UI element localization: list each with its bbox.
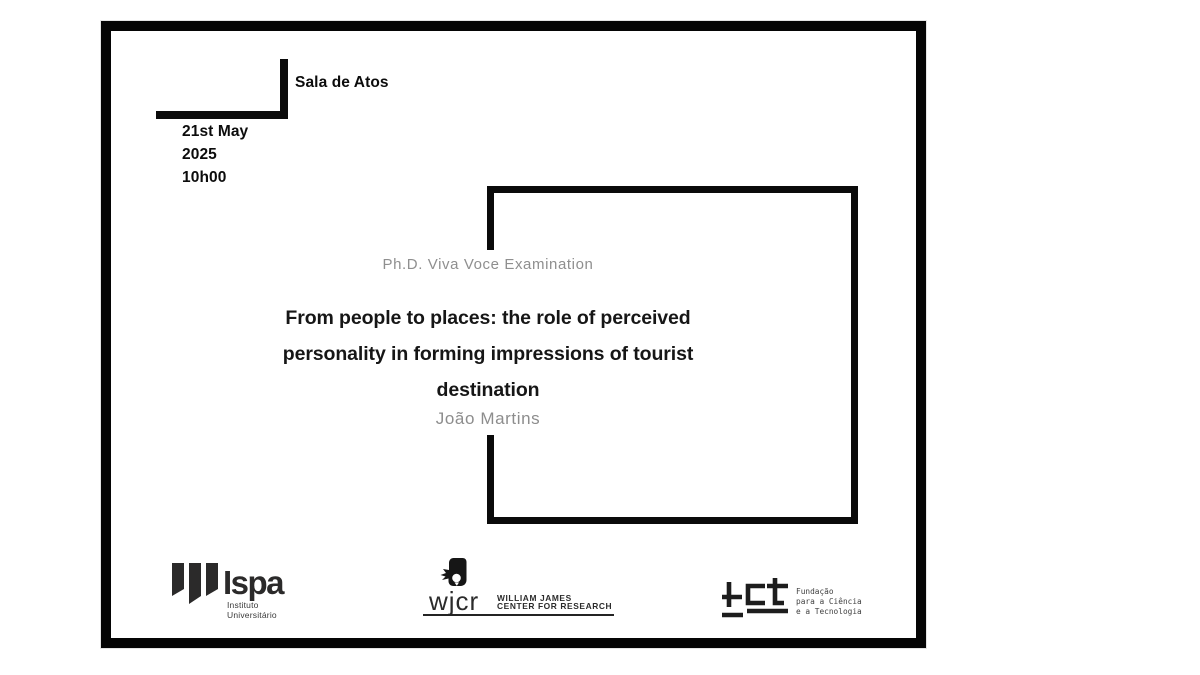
ispa-subtitle: Instituto Universitário <box>227 601 277 620</box>
date-line: 2025 <box>182 143 248 166</box>
corner-bracket-vertical <box>280 59 288 119</box>
date-line: 21st May <box>182 120 248 143</box>
wjcr-name-line: CENTER FOR RESEARCH <box>497 602 612 610</box>
datetime-block: 21st May 2025 10h00 <box>182 120 248 189</box>
thesis-title-line: destination <box>256 372 720 408</box>
thesis-title-line: personality in forming impressions of to… <box>256 336 720 372</box>
wjcr-underline <box>423 614 614 616</box>
event-type-label: Ph.D. Viva Voce Examination <box>256 256 720 274</box>
corner-bracket-horizontal <box>156 111 288 119</box>
fct-name-line: para a Ciência <box>796 597 862 607</box>
ispa-shield-icon <box>172 563 218 609</box>
thesis-title: From people to places: the role of perce… <box>256 300 720 408</box>
date-line: 10h00 <box>182 166 248 189</box>
wjcr-wordmark: wjcr <box>429 588 479 614</box>
fct-name-line: Fundação <box>796 587 862 597</box>
fct-name-line: e a Tecnologia <box>796 607 862 617</box>
room-label: Sala de Atos <box>295 74 389 92</box>
ispa-subtitle-line: Universitário <box>227 611 277 621</box>
thesis-title-line: From people to places: the role of perce… <box>256 300 720 336</box>
wjcr-name: WILLIAM JAMES CENTER FOR RESEARCH <box>497 594 612 610</box>
ispa-wordmark: Ispa <box>223 566 283 600</box>
fct-name: Fundação para a Ciência e a Tecnologia <box>796 587 862 618</box>
fct-wordmark-icon <box>722 576 789 623</box>
title-block: Ph.D. Viva Voce Examination From people … <box>256 250 720 435</box>
author-name: João Martins <box>256 409 720 429</box>
